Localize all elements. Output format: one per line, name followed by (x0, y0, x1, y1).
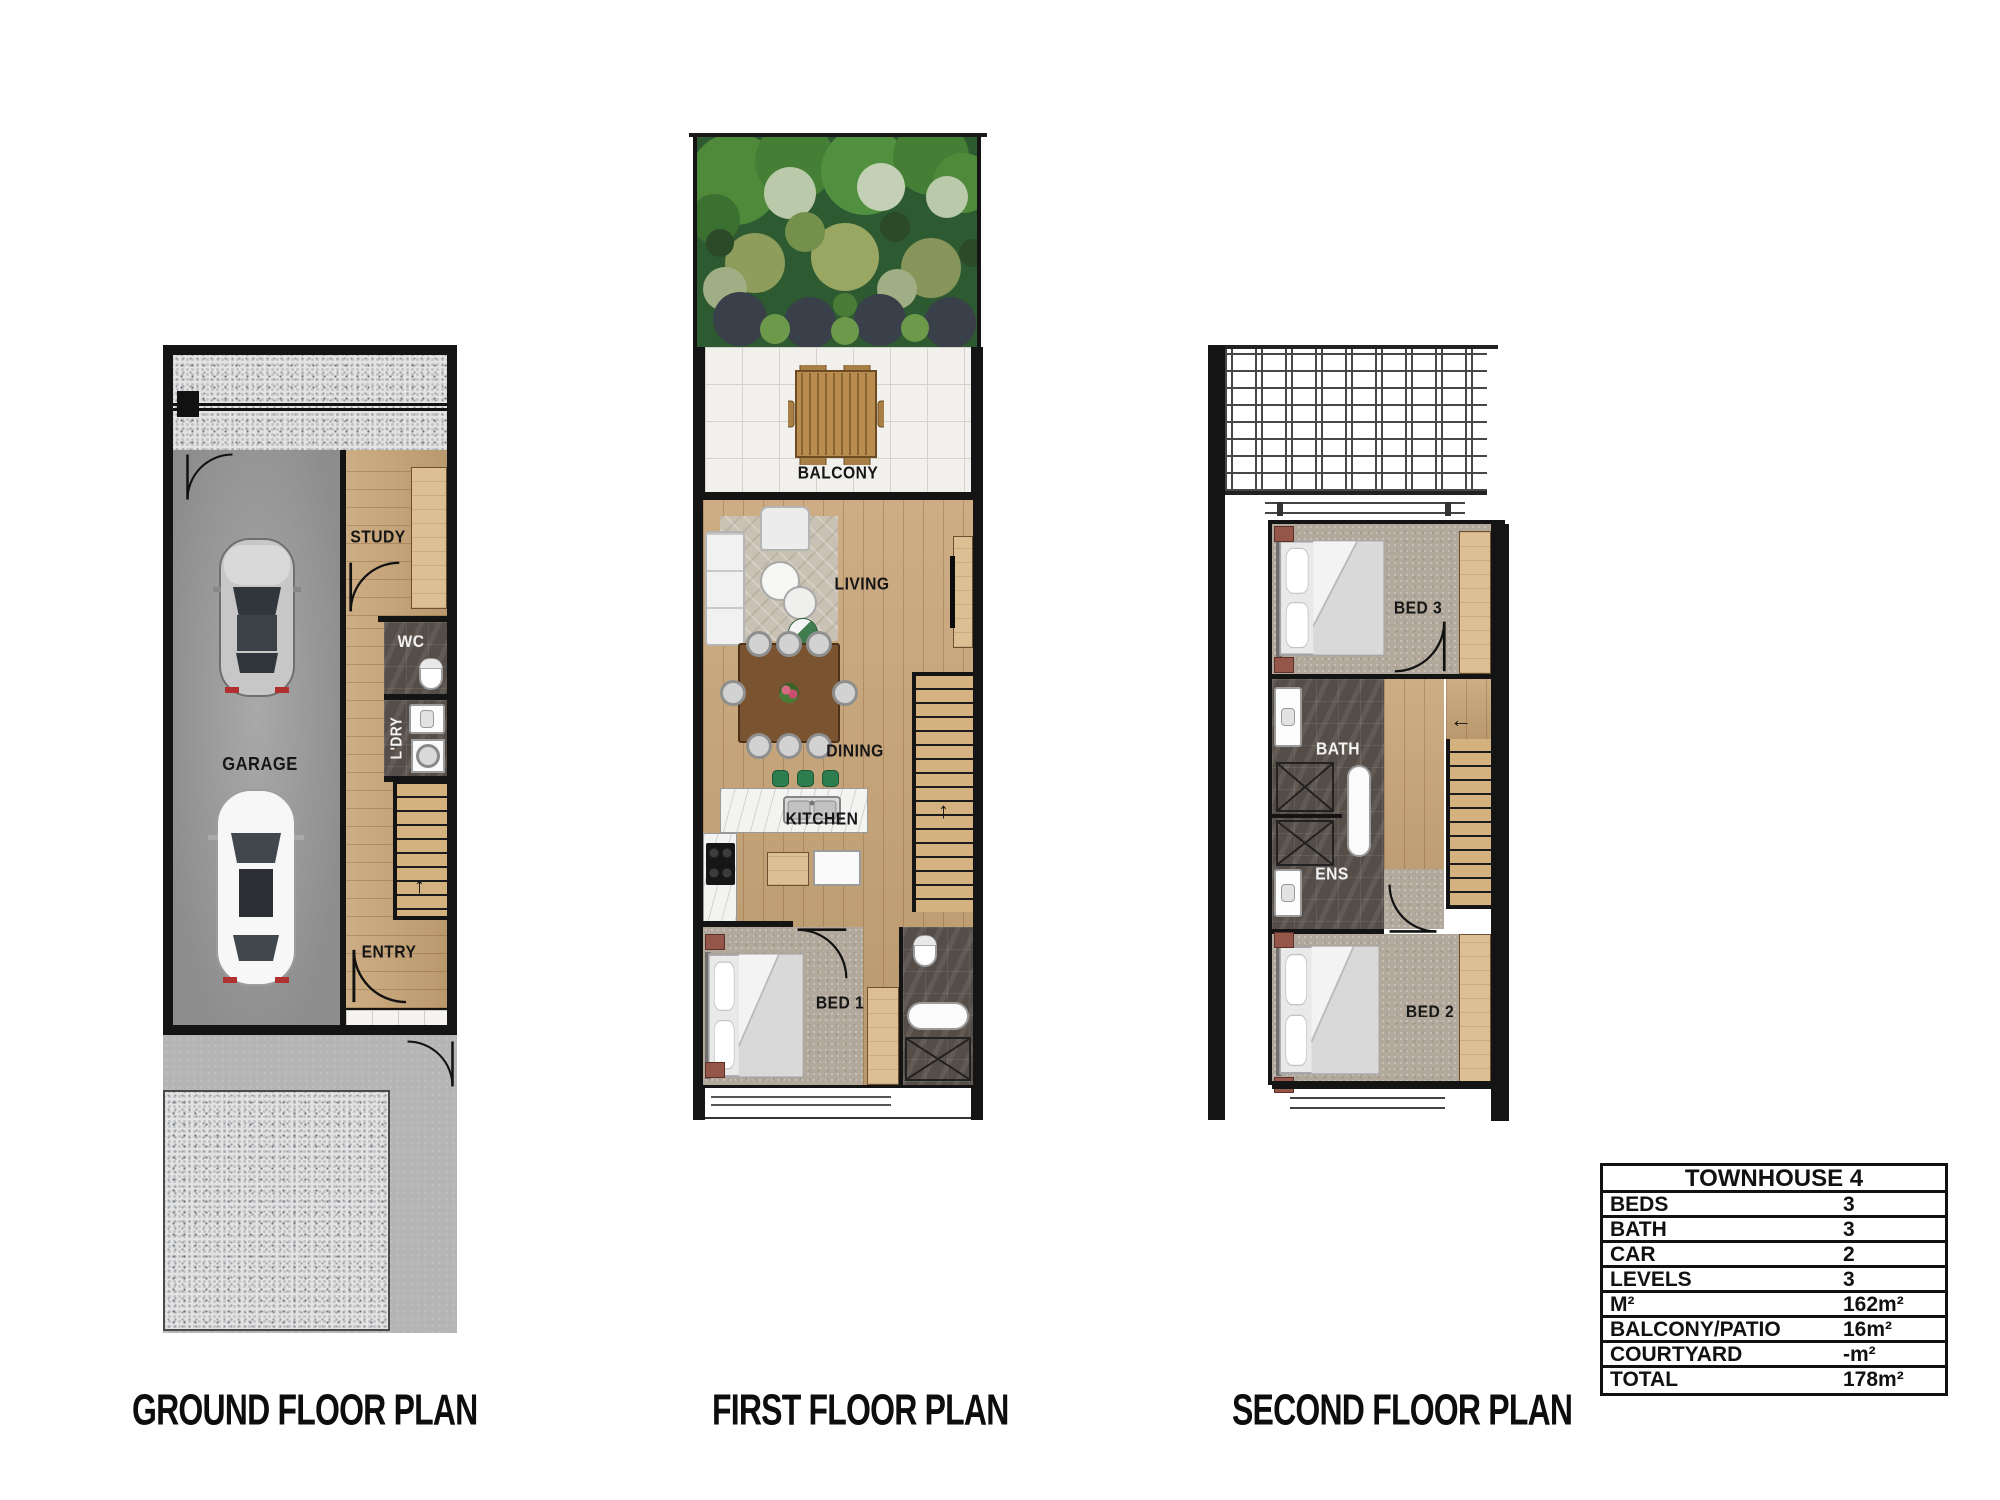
spec-value: 3 (1843, 1193, 1855, 1216)
bed-2 (1276, 944, 1381, 1076)
dining-chair (746, 631, 772, 657)
room-label-bed2: BED 2 (1406, 1002, 1454, 1023)
dining-flowers (779, 683, 799, 703)
room-label-garage: GARAGE (222, 753, 297, 775)
room-label-balcony: BALCONY (798, 463, 879, 484)
spec-row-beds: BEDS 3 (1603, 1193, 1945, 1218)
spec-value: 3 (1843, 1268, 1855, 1291)
fridge (813, 850, 861, 886)
garden-left-line (693, 137, 697, 347)
kitchen-stool (797, 770, 814, 787)
pergola-grid (1225, 345, 1487, 495)
title-second-floor: SECOND FLOOR PLAN (1232, 1386, 1488, 1436)
sofa (705, 531, 745, 646)
ensuite-toilet (913, 935, 937, 967)
kitchen-stool (822, 770, 839, 787)
bed1-side-table (705, 1062, 725, 1078)
room-label-ldry: L'DRY (388, 717, 406, 760)
garden-right-line (977, 137, 981, 347)
spec-label: CAR (1610, 1243, 1656, 1266)
sf-stairs (1446, 739, 1491, 909)
spec-row-courtyard: COURTYARD -m² (1603, 1343, 1945, 1368)
dining-chair (776, 733, 802, 759)
room-label-ens: ENS (1315, 864, 1349, 885)
dining-chair (720, 680, 746, 706)
spec-label: BATH (1610, 1218, 1667, 1241)
bath-ens-wall (1272, 814, 1342, 818)
sf-bottom-wall (1272, 1081, 1491, 1089)
rail-post (1277, 502, 1283, 516)
spec-table-title: TOWNHOUSE 4 (1603, 1166, 1945, 1193)
garage-door-motor (177, 391, 199, 417)
gf-stairs-arrow: ↑ (414, 875, 425, 897)
room-label-wc: WC (398, 632, 425, 653)
balcony-building-wall (693, 492, 983, 500)
spec-value: 16m² (1843, 1318, 1892, 1341)
bed-1 (705, 952, 805, 1079)
coffee-table-small (783, 586, 817, 620)
balcony-right-wall (971, 347, 983, 500)
bed2-robe (1459, 934, 1491, 1084)
spec-value: 178m² (1843, 1368, 1904, 1391)
second-floor-plan: BED 3 BATH ENS ← (1208, 345, 1498, 1120)
ensuite-bath (907, 1002, 969, 1030)
bed3-robe (1459, 531, 1491, 674)
spec-value: 3 (1843, 1218, 1855, 1241)
driveway-door-arc (405, 1039, 455, 1089)
tv (950, 556, 955, 628)
bed1-door-arc (795, 927, 849, 981)
bath-vanity (1274, 687, 1302, 747)
bed1-robe (867, 987, 899, 1085)
study-robe (411, 467, 447, 609)
spec-value: -m² (1843, 1343, 1876, 1366)
spec-label: COURTYARD (1610, 1343, 1742, 1366)
dining-chair (832, 680, 858, 706)
spec-row-levels: LEVELS 3 (1603, 1268, 1945, 1293)
first-floor-plan: BALCONY LIVING DINING (693, 133, 983, 1119)
spec-value: 162m² (1843, 1293, 1904, 1316)
bed1-side-table (705, 934, 725, 950)
room-label-study: STUDY (350, 527, 405, 548)
ff-building: LIVING DINING (693, 500, 983, 1085)
room-label-living: LIVING (835, 574, 890, 595)
spec-row-car: CAR 2 (1603, 1243, 1945, 1268)
driveway-gravel (163, 1090, 390, 1331)
bed1-ensuite (903, 927, 973, 1085)
spec-row-total: TOTAL 178m² (1603, 1368, 1945, 1393)
bed3-side-table (1274, 526, 1294, 542)
title-first-floor: FIRST FLOOR PLAN (712, 1386, 968, 1436)
pergola-right-tick (1487, 345, 1498, 349)
ens-vanity (1274, 869, 1302, 917)
bath-tub (1347, 765, 1371, 857)
bed-3 (1276, 539, 1386, 657)
spec-label: LEVELS (1610, 1268, 1692, 1291)
garage-door-arc (185, 452, 235, 502)
tv-unit (953, 536, 973, 648)
spec-label: TOTAL (1610, 1368, 1678, 1391)
entry-door-arc (351, 947, 409, 1005)
room-label-bed3: BED 3 (1394, 598, 1442, 619)
spec-value: 2 (1843, 1243, 1855, 1266)
bed2-door-arc (1387, 882, 1439, 934)
sf-bottom-rail (1290, 1097, 1445, 1109)
sf-building: BED 3 BATH ENS ← (1268, 520, 1505, 1085)
bed3-door-arc (1392, 619, 1447, 674)
car-silver (211, 535, 303, 700)
kitchen-stool (772, 770, 789, 787)
wc-toilet (419, 658, 443, 690)
ff-corner-wall-left (693, 1088, 705, 1120)
entry-porch-tiles (346, 1008, 447, 1025)
spec-label: M² (1610, 1293, 1635, 1316)
spec-label: BALCONY/PATIO (1610, 1318, 1781, 1341)
sf-left-boundary-wall (1208, 345, 1225, 1120)
ldry-sink (409, 704, 445, 734)
ensuite-shower (905, 1037, 971, 1081)
floor-plan-sheet: GARAGE STUDY WC L'DRY (0, 0, 2000, 1500)
room-label-dining: DINING (826, 741, 884, 762)
ground-floor-plan: GARAGE STUDY WC L'DRY (163, 345, 457, 1035)
ff-stairs (916, 676, 973, 912)
spec-row-balcony-patio: BALCONY/PATIO 16m² (1603, 1318, 1945, 1343)
study-door-arc (348, 560, 402, 614)
bath-room (1272, 679, 1384, 929)
armchair (760, 506, 810, 551)
car-white (206, 785, 306, 990)
dining-chair (806, 631, 832, 657)
kitchen-cabinet (767, 852, 809, 886)
ff-corner-wall-right (971, 1088, 983, 1120)
bed2-side-table (1274, 932, 1294, 948)
dining-chair (746, 733, 772, 759)
ensuite-wall (899, 927, 903, 1085)
title-ground-floor: GROUND FLOOR PLAN (132, 1386, 388, 1436)
balcony-left-wall (693, 347, 705, 500)
dining-chair (776, 631, 802, 657)
balcony-table (788, 365, 884, 465)
room-label-bed1: BED 1 (816, 993, 864, 1014)
driveway (163, 1035, 457, 1333)
room-label-bath: BATH (1316, 739, 1360, 760)
room-label-kitchen: KITCHEN (786, 809, 859, 830)
spec-row-m2: M² 162m² (1603, 1293, 1945, 1318)
rail-post (1445, 502, 1451, 516)
ff-stairs-arrow: ↑ (938, 800, 949, 822)
cooktop (706, 843, 735, 885)
ens-shower (1276, 820, 1334, 866)
roof-garden (695, 137, 981, 347)
ff-window-strip (693, 1085, 983, 1119)
spec-table: TOWNHOUSE 4 BEDS 3 BATH 3 CAR 2 LEVELS 3… (1600, 1163, 1948, 1396)
sf-stairs-arrow: ← (1450, 709, 1472, 731)
bath-shower (1276, 762, 1334, 812)
window-rail (711, 1096, 891, 1106)
garage-door-line (173, 403, 447, 411)
spec-row-bath: BATH 3 (1603, 1218, 1945, 1243)
bed3-side-table (1274, 657, 1294, 673)
sf-handrail (1265, 502, 1465, 514)
sf-right-wall (1491, 524, 1509, 1121)
washing-machine (411, 739, 445, 773)
spec-label: BEDS (1610, 1193, 1668, 1216)
